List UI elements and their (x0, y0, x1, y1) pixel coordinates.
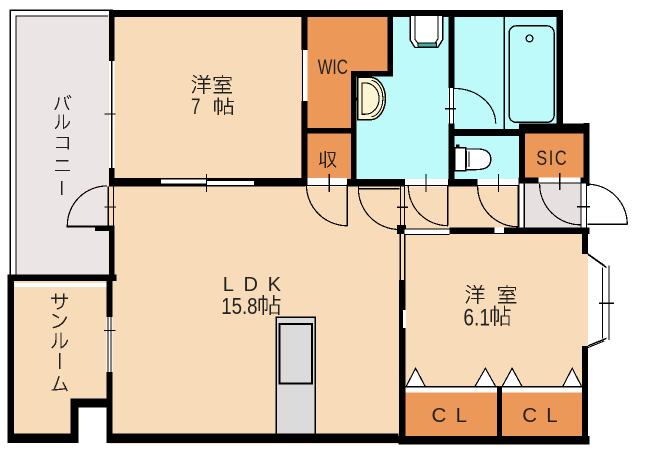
svg-text:6.1: 6.1 (463, 305, 490, 332)
svg-text:15.8: 15.8 (221, 293, 257, 319)
svg-text:WIC: WIC (318, 54, 348, 78)
svg-text:SIC: SIC (536, 146, 568, 169)
svg-text:CL: CL (522, 404, 567, 427)
svg-text:CL: CL (432, 404, 477, 427)
svg-text:7: 7 (191, 94, 201, 119)
